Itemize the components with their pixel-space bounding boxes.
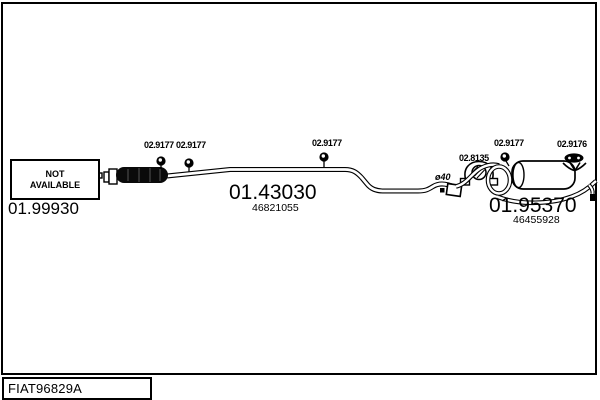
part-number-center[interactable]: 01.43030 <box>229 182 317 203</box>
part-number-rear[interactable]: 01.95370 <box>489 195 577 216</box>
not-available-box: NOT AVAILABLE <box>10 159 100 200</box>
hanger-ring-icon <box>184 158 193 172</box>
hanger-ring-icon <box>319 152 328 168</box>
mount-part-label[interactable]: 02.8135 <box>459 154 489 163</box>
exhaust-parts-diagram: NOT AVAILABLE 01.99930 02.9177 02.9177 0… <box>0 0 600 400</box>
diagram-code-box: FIAT96829A <box>2 377 152 400</box>
front-flange-icon <box>97 169 117 184</box>
not-available-line1: NOT <box>46 169 65 180</box>
hanger-ring-icon <box>500 152 509 166</box>
diagram-code: FIAT96829A <box>4 381 82 396</box>
hanger-part-label-2[interactable]: 02.9177 <box>176 141 206 150</box>
hanger-part-label-1[interactable]: 02.9177 <box>144 141 174 150</box>
flex-pipe-section <box>116 167 168 183</box>
hanger-part-label-3[interactable]: 02.9177 <box>312 139 342 148</box>
not-available-line2: AVAILABLE <box>30 180 80 191</box>
hanger-part-label-4[interactable]: 02.9177 <box>494 139 524 148</box>
hanger-part-label-5[interactable]: 02.9176 <box>557 140 587 149</box>
pipe-diameter-label: ø40 <box>435 173 451 182</box>
oem-number-rear: 46455928 <box>513 215 560 226</box>
tailpipe-end-marker <box>590 194 597 201</box>
oem-number-center: 46821055 <box>252 203 299 214</box>
part-number-front[interactable]: 01.99930 <box>8 200 79 217</box>
